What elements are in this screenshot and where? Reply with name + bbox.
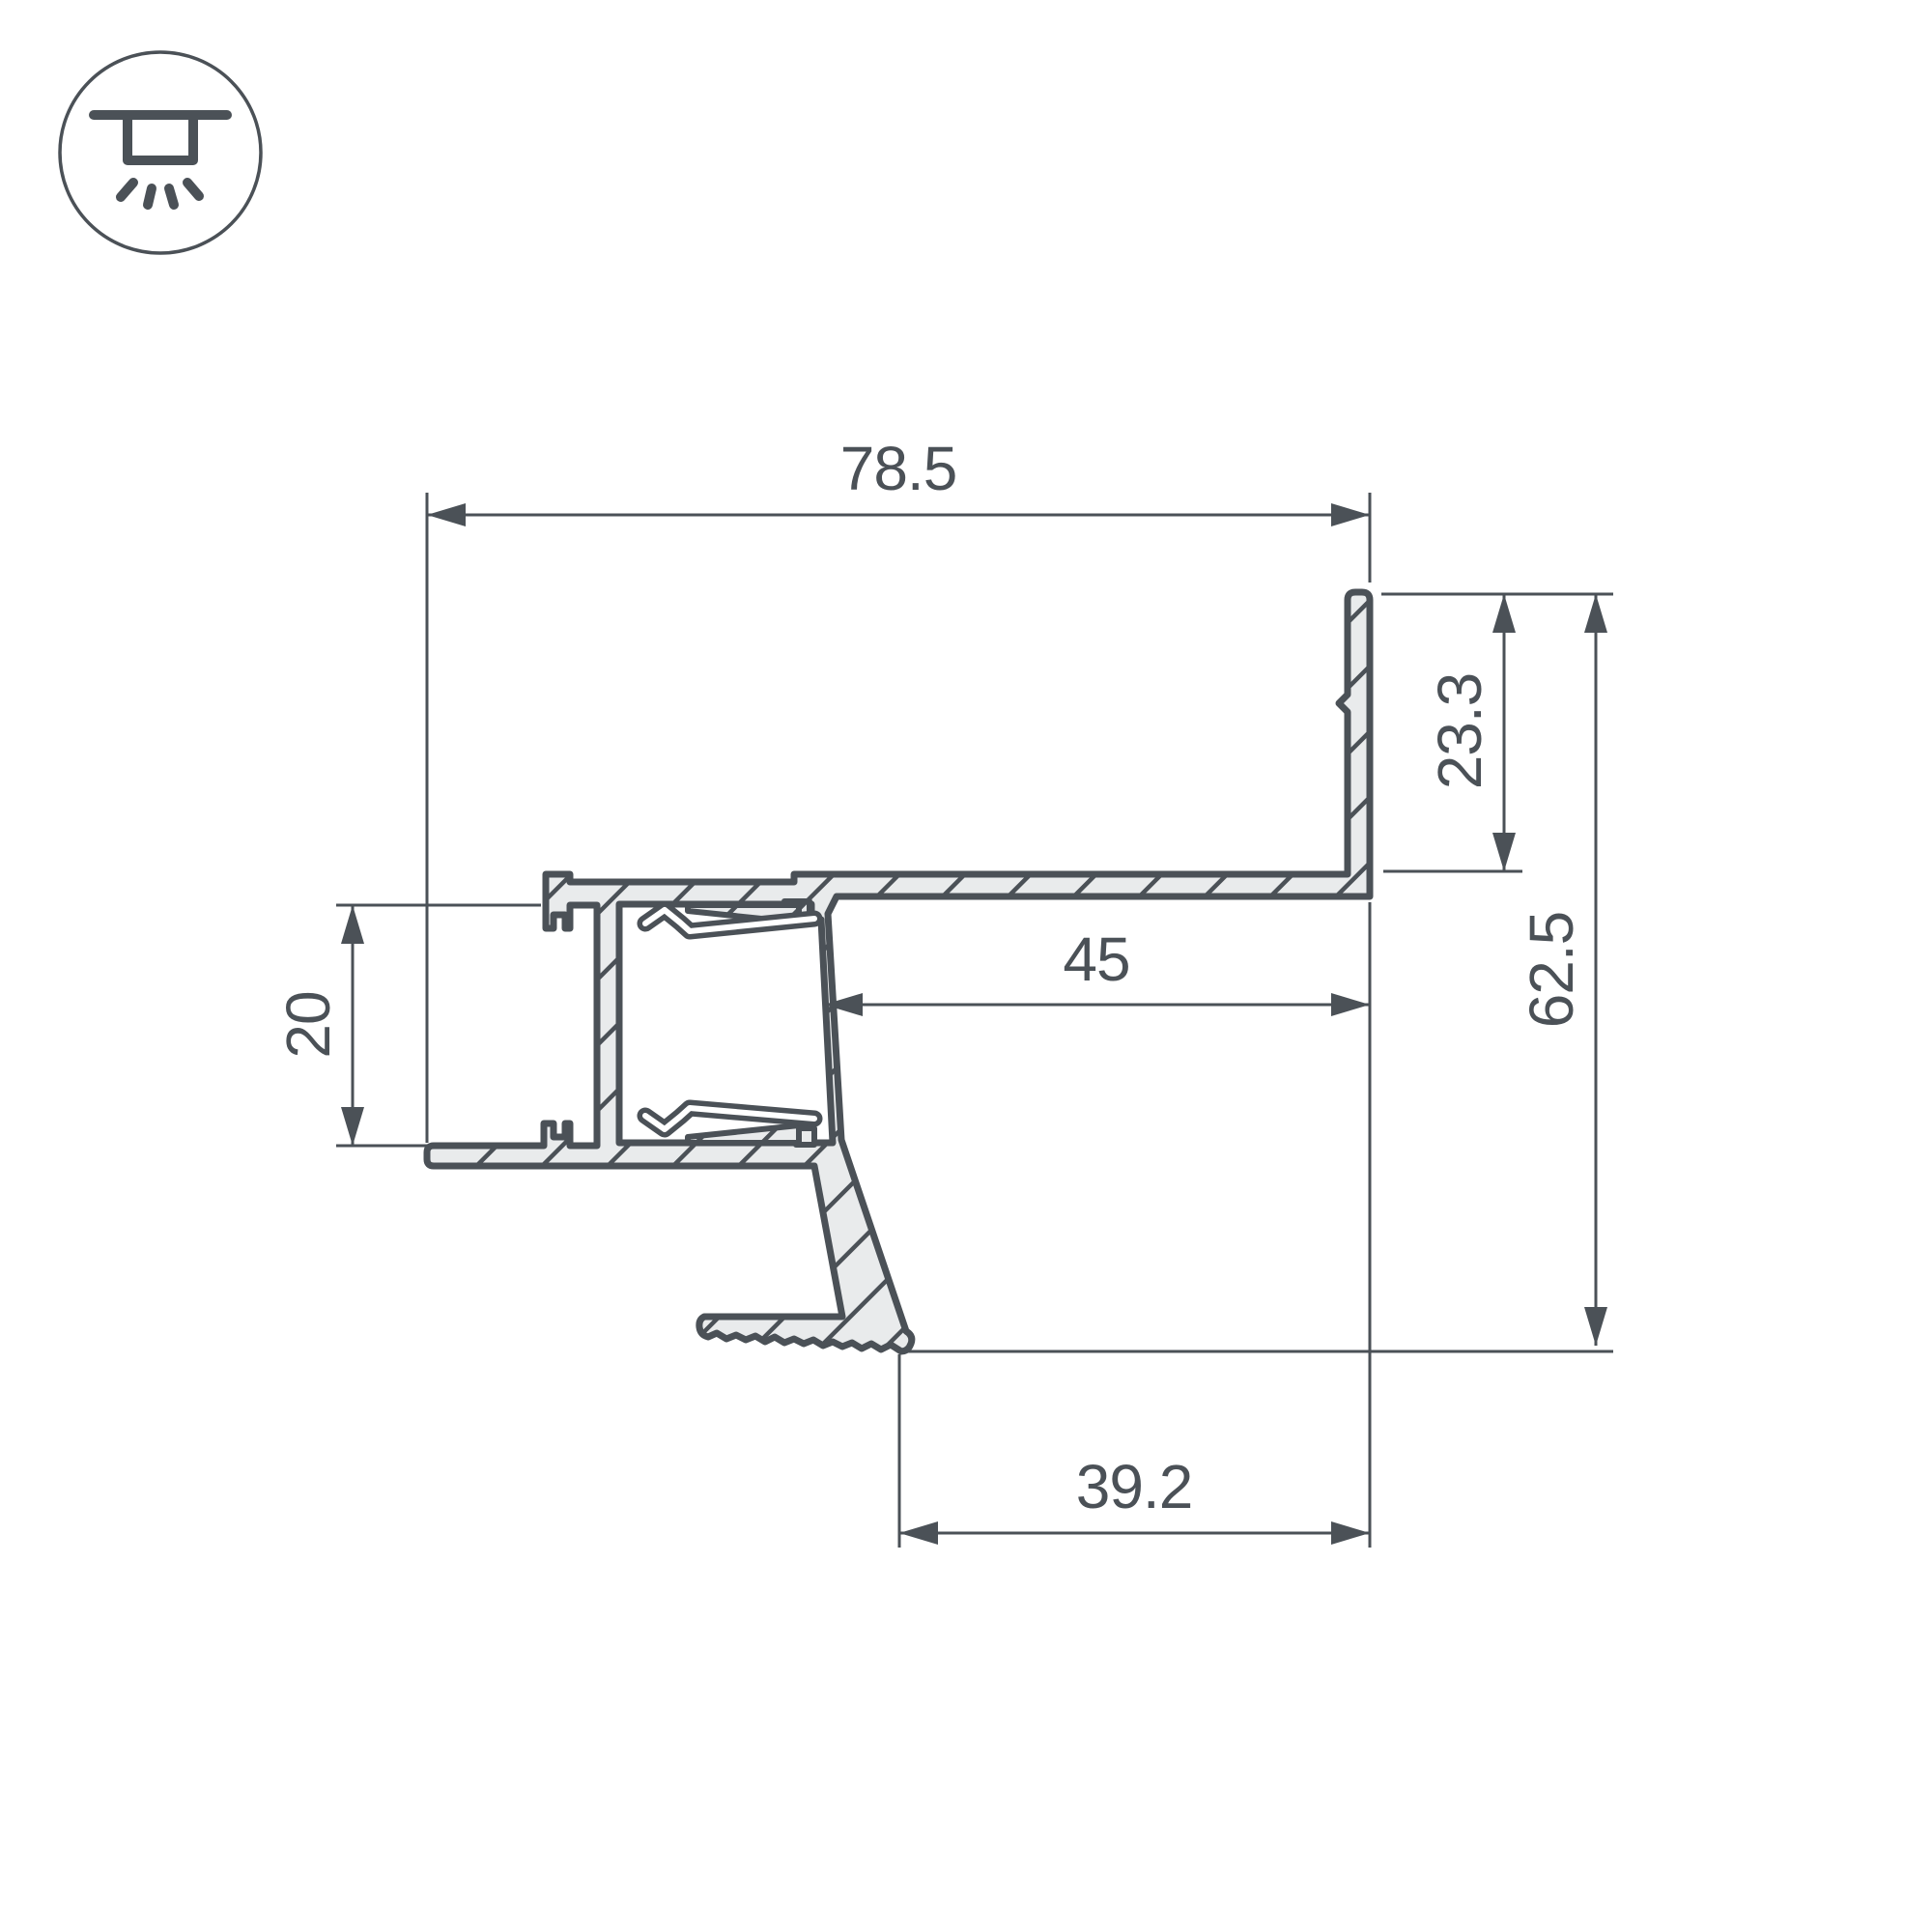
arrowhead-right — [1331, 1521, 1370, 1545]
dimension-label: 23.3 — [1425, 673, 1494, 790]
dimension-label: 45 — [1063, 924, 1129, 994]
dimension-label: 20 — [273, 991, 343, 1058]
technical-drawing-canvas: 78.5 23.3 62.5 45 20 — [0, 0, 1932, 1932]
profile-cross-section — [427, 592, 1370, 1351]
arrowhead-top — [1584, 594, 1607, 633]
icon-circle — [60, 52, 261, 253]
profile-drawing-svg: 78.5 23.3 62.5 45 20 — [0, 0, 1932, 1932]
arrowhead-right — [1331, 503, 1370, 526]
arrowhead-bottom — [1492, 833, 1516, 871]
dimension-overall-height: 62.5 — [1517, 594, 1607, 1346]
profile-body — [427, 592, 1370, 1351]
arrowhead-top — [341, 905, 364, 944]
arrowhead-left — [899, 1521, 938, 1545]
dimensions: 78.5 23.3 62.5 45 20 — [273, 434, 1613, 1548]
arrowhead-top — [1492, 594, 1516, 633]
arrowhead-bottom — [1584, 1307, 1607, 1346]
dimension-overall-width: 78.5 — [427, 434, 1370, 526]
arrowhead-bottom — [341, 1107, 364, 1146]
dimension-channel-inset: 45 — [824, 924, 1370, 1016]
dimension-label: 78.5 — [840, 434, 957, 503]
dimension-mounting-opening: 20 — [273, 905, 364, 1146]
dimension-label: 39.2 — [1076, 1452, 1193, 1521]
dimension-label: 62.5 — [1517, 912, 1586, 1029]
arrowhead-right — [1331, 993, 1370, 1016]
dimension-foot-offset: 39.2 — [899, 1452, 1370, 1545]
recessed-ceiling-downlight-icon — [60, 52, 261, 253]
dimension-flange-height: 23.3 — [1425, 594, 1516, 871]
arrowhead-left — [427, 503, 466, 526]
